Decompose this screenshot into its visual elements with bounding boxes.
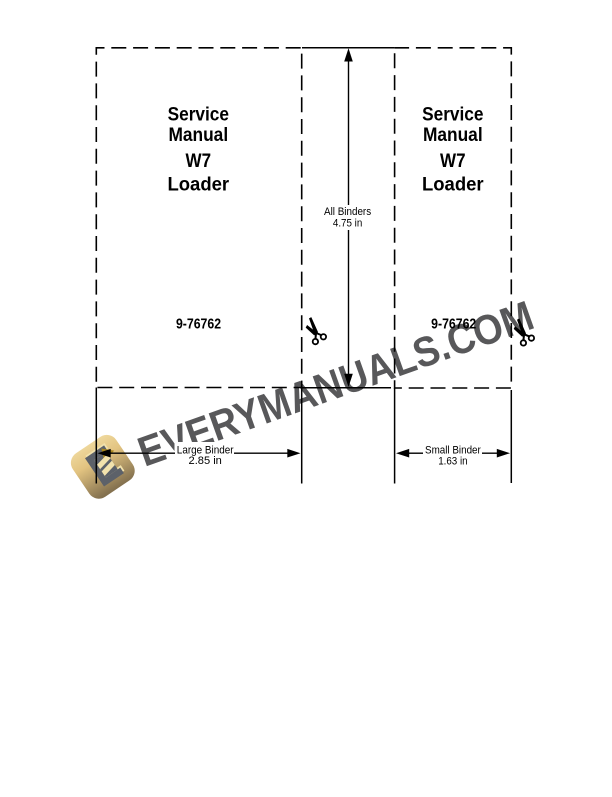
svg-text:9-76762: 9-76762 (176, 317, 221, 333)
svg-text:Manual: Manual (168, 125, 228, 146)
svg-text:4.75 in: 4.75 in (333, 218, 362, 230)
svg-text:W7: W7 (440, 151, 466, 172)
svg-text:Service: Service (422, 104, 483, 125)
svg-text:1.63 in: 1.63 in (438, 455, 467, 467)
svg-text:Manual: Manual (423, 125, 483, 146)
svg-text:Loader: Loader (422, 174, 484, 195)
svg-text:All Binders: All Binders (324, 206, 371, 218)
svg-text:9-76762: 9-76762 (431, 317, 476, 333)
svg-text:Service: Service (168, 104, 229, 125)
svg-text:Loader: Loader (167, 174, 229, 195)
svg-text:W7: W7 (186, 151, 212, 172)
svg-text:2.85 in: 2.85 in (189, 455, 222, 467)
